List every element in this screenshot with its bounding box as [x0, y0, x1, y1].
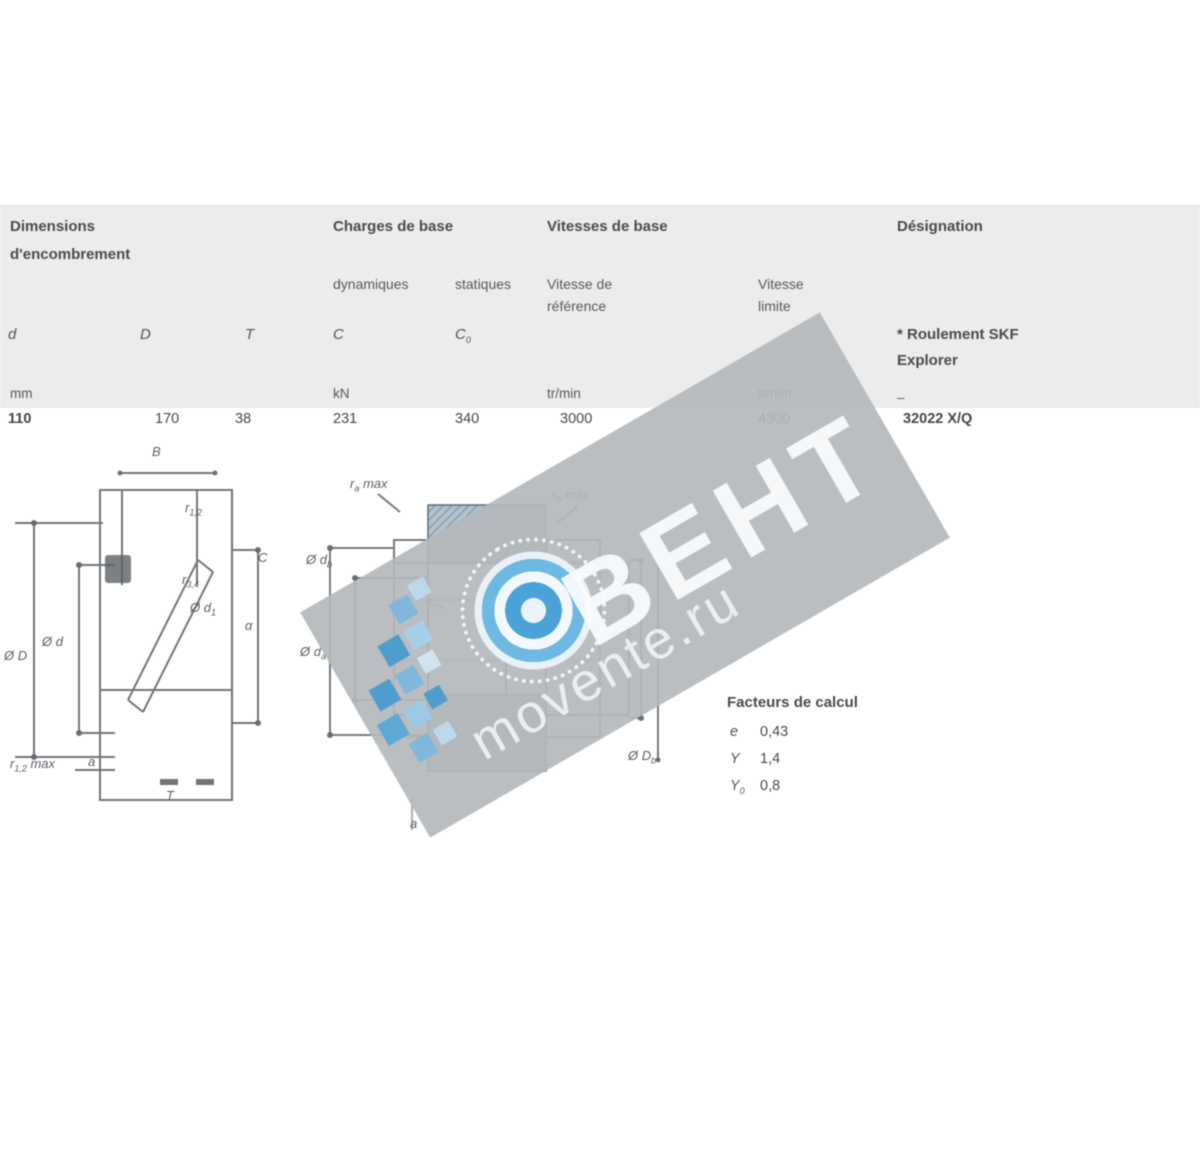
catalog-page: Dimensions d'encombrement Charges de bas…	[0, 0, 1200, 1165]
unit-rpm-ref: tr/min	[547, 386, 581, 401]
value-D: 170	[155, 411, 179, 427]
dim-label-T: T	[166, 788, 174, 806]
dim-label-B: B	[152, 444, 161, 462]
dim-label-ra-max: ra max	[350, 476, 388, 494]
factor-Y-value: 1,4	[760, 751, 780, 767]
factor-Y0-value: 0,8	[760, 778, 780, 794]
value-ref-speed: 3000	[560, 411, 592, 427]
dim-label-db: Ø db	[306, 552, 332, 570]
subheader-static: statiques	[455, 276, 511, 292]
explorer-note-line1: * Roulement SKF	[897, 326, 1019, 343]
header-dimensions-line1: Dimensions	[10, 218, 95, 235]
factor-Y0-symbol: Y0	[730, 778, 745, 796]
header-loads: Charges de base	[333, 218, 453, 235]
col-header-C: C	[333, 326, 344, 343]
header-dimensions-line2: d'encombrement	[10, 246, 130, 263]
explorer-note-line2: Explorer	[897, 352, 958, 369]
header-speeds: Vitesses de base	[547, 218, 668, 235]
dim-label-C: C	[258, 550, 267, 568]
factor-Y-symbol: Y	[730, 751, 740, 769]
dim-label-r34: r3,4	[182, 572, 199, 590]
subheader-lim-speed-line1: Vitesse	[758, 276, 804, 292]
dim-label-r12max: r1,2 max	[10, 756, 55, 774]
subheader-ref-speed-line2: référence	[547, 298, 606, 314]
dim-label-alpha: α	[245, 618, 252, 636]
factors-title: Facteurs de calcul	[727, 694, 858, 711]
unit-mm: mm	[10, 386, 33, 401]
col-header-D: D	[140, 326, 151, 343]
dim-label-d1: Ø d1	[190, 600, 216, 618]
header-designation: Désignation	[897, 218, 983, 235]
dim-label-a: a	[88, 754, 95, 772]
value-C0: 340	[455, 411, 479, 427]
value-d: 110	[8, 411, 31, 427]
factor-e-value: 0,43	[760, 724, 788, 740]
value-C: 231	[333, 411, 357, 427]
col-header-C0: C0	[455, 326, 471, 345]
value-designation: 32022 X/Q	[903, 411, 972, 427]
subheader-dynamic: dynamiques	[333, 276, 409, 292]
subheader-ref-speed-line1: Vitesse de	[547, 276, 612, 292]
dim-label-Db: Ø Db	[628, 748, 656, 766]
col-header-d: d	[8, 326, 16, 343]
factor-e-symbol: e	[730, 724, 738, 742]
dim-label-r12: r1,2	[185, 500, 202, 518]
value-T: 38	[235, 411, 251, 427]
dim-label-a-bottom: a	[410, 816, 417, 834]
col-header-T: T	[245, 326, 254, 343]
subheader-lim-speed-line2: limite	[758, 298, 791, 314]
dim-label-D-outer: Ø D	[4, 648, 27, 666]
unit-kn: kN	[333, 386, 350, 401]
unit-dash: –	[897, 390, 905, 405]
dim-label-d-bore: Ø d	[42, 634, 63, 652]
